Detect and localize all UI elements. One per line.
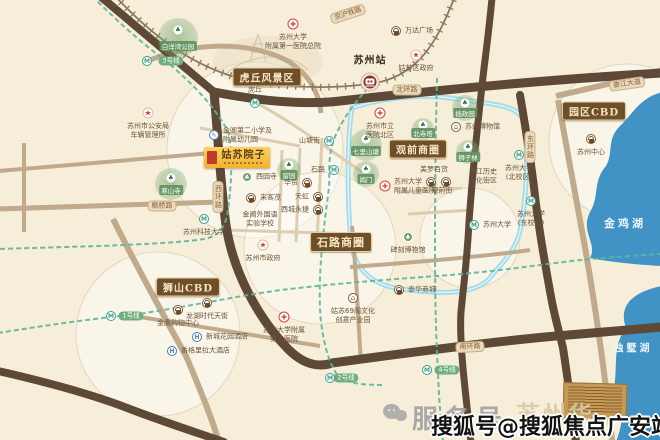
suzhou-museum-icon: ⌂ — [451, 122, 461, 132]
hanshan-temple-label: 寒山寺 — [159, 185, 183, 195]
pill-metro-line-2: 2号线 — [333, 373, 358, 382]
suzhou-city-gov-label: 苏州市政府 — [246, 254, 281, 263]
tianhong-label: 天虹 — [295, 193, 309, 202]
guanqian-street-label: 观前街 — [432, 187, 453, 196]
banner-guanqian-business-circle: 观前商圈 — [389, 140, 447, 159]
xiyuan-temple-label: 西园寺 — [256, 173, 277, 182]
pill-metro-line-1-icon: M — [106, 311, 116, 321]
baiyangwan-park-tree-icon: ♣ — [174, 26, 183, 35]
banner-huqiu-scenic-area: 虎丘风景区 — [233, 68, 302, 87]
road-label-xihuan-road: 西环路 — [212, 181, 223, 213]
qili-shantang-label: 七里山塘 — [351, 146, 381, 156]
beike-museum-label: 碑刻博物馆 — [391, 246, 426, 255]
road-label-nanhuan-road: 南环路 — [455, 341, 485, 354]
sohu-watermark: 搜狐号@搜狐焦点广安站 — [431, 409, 660, 440]
beike-museum-icon: ♣ — [403, 232, 413, 242]
jinji-lake-label: 金鸡湖 — [604, 215, 646, 231]
zhuozheng-garden-label: 拙政园 — [453, 108, 477, 118]
road-label-jinghu-railway: 京沪铁路 — [329, 3, 367, 25]
guanqian-shop-1-icon — [426, 177, 436, 187]
shizilin-garden-label: 狮子林 — [456, 152, 480, 162]
meiluo-department-label: 美罗百货 — [420, 166, 448, 175]
huamao-icon — [302, 178, 312, 188]
soochow-university-north-label: 苏州大学(北校区) — [505, 164, 533, 182]
soochow-university-north-icon: M — [514, 150, 524, 160]
suzhou-center-label: 苏州中心 — [577, 148, 605, 157]
property-seal-icon — [207, 151, 217, 164]
suzhou-location-map: ♣白洋湾公园♣寒山寺♣留园♣七里山塘♣阊门♣北寺塔♣拙政园♣狮子林M虎丘M山塘街… — [0, 0, 660, 440]
dushu-lake-label: 独墅湖 — [614, 340, 653, 355]
soochow-university-east-icon: M — [526, 196, 536, 206]
xicheng-yongjie-icon — [313, 205, 323, 215]
pill-metro-line-4-icon: M — [422, 365, 432, 375]
jinchang-second-primary-icon: ✎ — [209, 130, 219, 140]
wanda-plaza-label: 万达广场 — [405, 27, 433, 36]
longhu-times-street-label: 龙湖时代天街 — [186, 312, 228, 321]
suda-second-hospital-icon: ✚ — [279, 312, 290, 323]
suzhou-railway-station-label: 苏州站 — [354, 56, 387, 69]
gusu-69-creative-park-icon: ⌂ — [348, 293, 358, 303]
laikemao-icon — [246, 193, 256, 203]
baiyangwan-park — [158, 18, 198, 58]
pill-metro-line-1: 1号线 — [118, 311, 143, 320]
shangri-la-hotel-label: 香格里拉大酒店 — [181, 347, 230, 356]
suzhou-city-gov-icon: ★ — [258, 240, 269, 251]
soochow-university-icon: M — [469, 220, 479, 230]
beisi-pagoda-label: 北寺塔 — [411, 128, 435, 138]
shantangjie-station-icon: M — [324, 136, 334, 146]
xicheng-yongjie-label: 西城永捷 — [281, 206, 309, 215]
xiyuan-temple-icon: ♣ — [242, 172, 252, 182]
tianhong-icon — [313, 192, 323, 202]
road-label-loujiang-avenue: 娄江大道 — [608, 76, 645, 92]
wechat-icon — [383, 402, 409, 425]
shili-hospital-north-icon: ✚ — [375, 108, 386, 119]
soochow-university-east-label: 苏州大学(东校区) — [517, 210, 545, 228]
road-label-beihuan-road: 北环路 — [393, 84, 422, 95]
suzhou-tech-university-icon: M — [199, 214, 209, 224]
pill-metro-line-3-icon: M — [142, 56, 152, 66]
shangri-la-hotel-icon: H — [167, 346, 177, 356]
vehicle-admin-office-icon: ★ — [143, 108, 154, 119]
changmen-gate-label: 阊门 — [358, 174, 375, 184]
jinchang-second-primary-label: 金阊第二小学及附属幼儿园 — [223, 126, 272, 144]
guanqian-shop-2-icon — [441, 177, 451, 187]
suzhou-center-icon — [586, 134, 596, 144]
property-subtitle-line — [224, 162, 264, 164]
suda-second-hospital-label: 苏州大学附属第二医院 — [263, 326, 305, 344]
soochow-university-label: 苏州大学 — [483, 221, 511, 230]
hanshan-temple-tree-icon: ♣ — [167, 173, 176, 182]
poi-layer: ♣白洋湾公园♣寒山寺♣留园♣七里山塘♣阊门♣北寺塔♣拙政园♣狮子林M虎丘M山塘街… — [0, 0, 660, 440]
road-label-fengqiao-road: 枫桥路 — [148, 200, 177, 211]
xincheng-garden-hotel-label: 新城花园酒店 — [206, 333, 248, 342]
changmen-gate-tree-icon: ♣ — [362, 165, 371, 174]
gusu-69-creative-park-label: 姑苏69阁文化创意产业园 — [331, 307, 375, 325]
laikemao-label: 来客茂 — [260, 194, 281, 203]
shili-hospital-north-label: 苏州市立医院北区 — [366, 122, 394, 140]
pill-metro-line-4: 4号线 — [434, 365, 459, 374]
gusu-district-gov-icon: ★ — [411, 50, 422, 61]
vehicle-admin-office-label: 苏州市公安局车辆管理所 — [127, 122, 169, 140]
gusu-district-gov-label: 姑苏区政府 — [399, 64, 434, 73]
taihua-mall-label: 泰华商城 — [408, 286, 436, 295]
shilu-station-label: 石路 — [311, 166, 325, 175]
suzhou-railway-station-icon — [362, 74, 379, 91]
pill-metro-line-2-icon: M — [325, 373, 335, 383]
zhuozheng-garden-tree-icon: ♣ — [461, 99, 470, 108]
taihua-mall-icon — [394, 285, 404, 295]
longhu-times-street-icon — [202, 298, 212, 308]
banner-yuanqu-cbd: 园区CBD — [562, 102, 626, 121]
suda-first-hospital-icon: ✚ — [288, 19, 299, 30]
children-hospital-icon: ✚ — [380, 181, 391, 192]
wanda-plaza-icon — [391, 26, 401, 36]
banner-shilu-business-circle: 石路商圈 — [310, 232, 372, 252]
property-name: 姑苏院子 — [222, 151, 266, 161]
banner-shishan-cbd: 狮山CBD — [156, 278, 220, 297]
huqiu-station-label: 虎丘 — [248, 85, 262, 94]
pingjiang-historic-district-label: 平江历史文化街区 — [469, 167, 497, 185]
suda-first-hospital-label: 苏州大学附属第一医院总院 — [265, 33, 321, 51]
jinchang-foreign-school-label: 金阊外国语实验学校 — [243, 210, 278, 228]
property-marker: 姑苏院子 — [204, 147, 270, 168]
road-label-donghuan-road: 东环路 — [524, 131, 535, 163]
xincheng-garden-hotel-icon: H — [192, 332, 202, 342]
suzhou-tech-university-label: 苏州科技大学 — [183, 228, 225, 237]
suzhou-museum-label: 苏州博物馆 — [465, 123, 500, 132]
baiyangwan-park-label: 白洋湾公园 — [160, 41, 197, 51]
huamao-label: 华贸 — [284, 179, 298, 188]
jinying-shopping-center-icon — [173, 305, 183, 315]
pill-metro-line-3: 3号线 — [158, 56, 183, 65]
shantangjie-station-label: 山塘街 — [299, 137, 320, 146]
huqiu-station-icon: M — [250, 98, 260, 108]
shilu-station-icon: M — [329, 165, 339, 175]
